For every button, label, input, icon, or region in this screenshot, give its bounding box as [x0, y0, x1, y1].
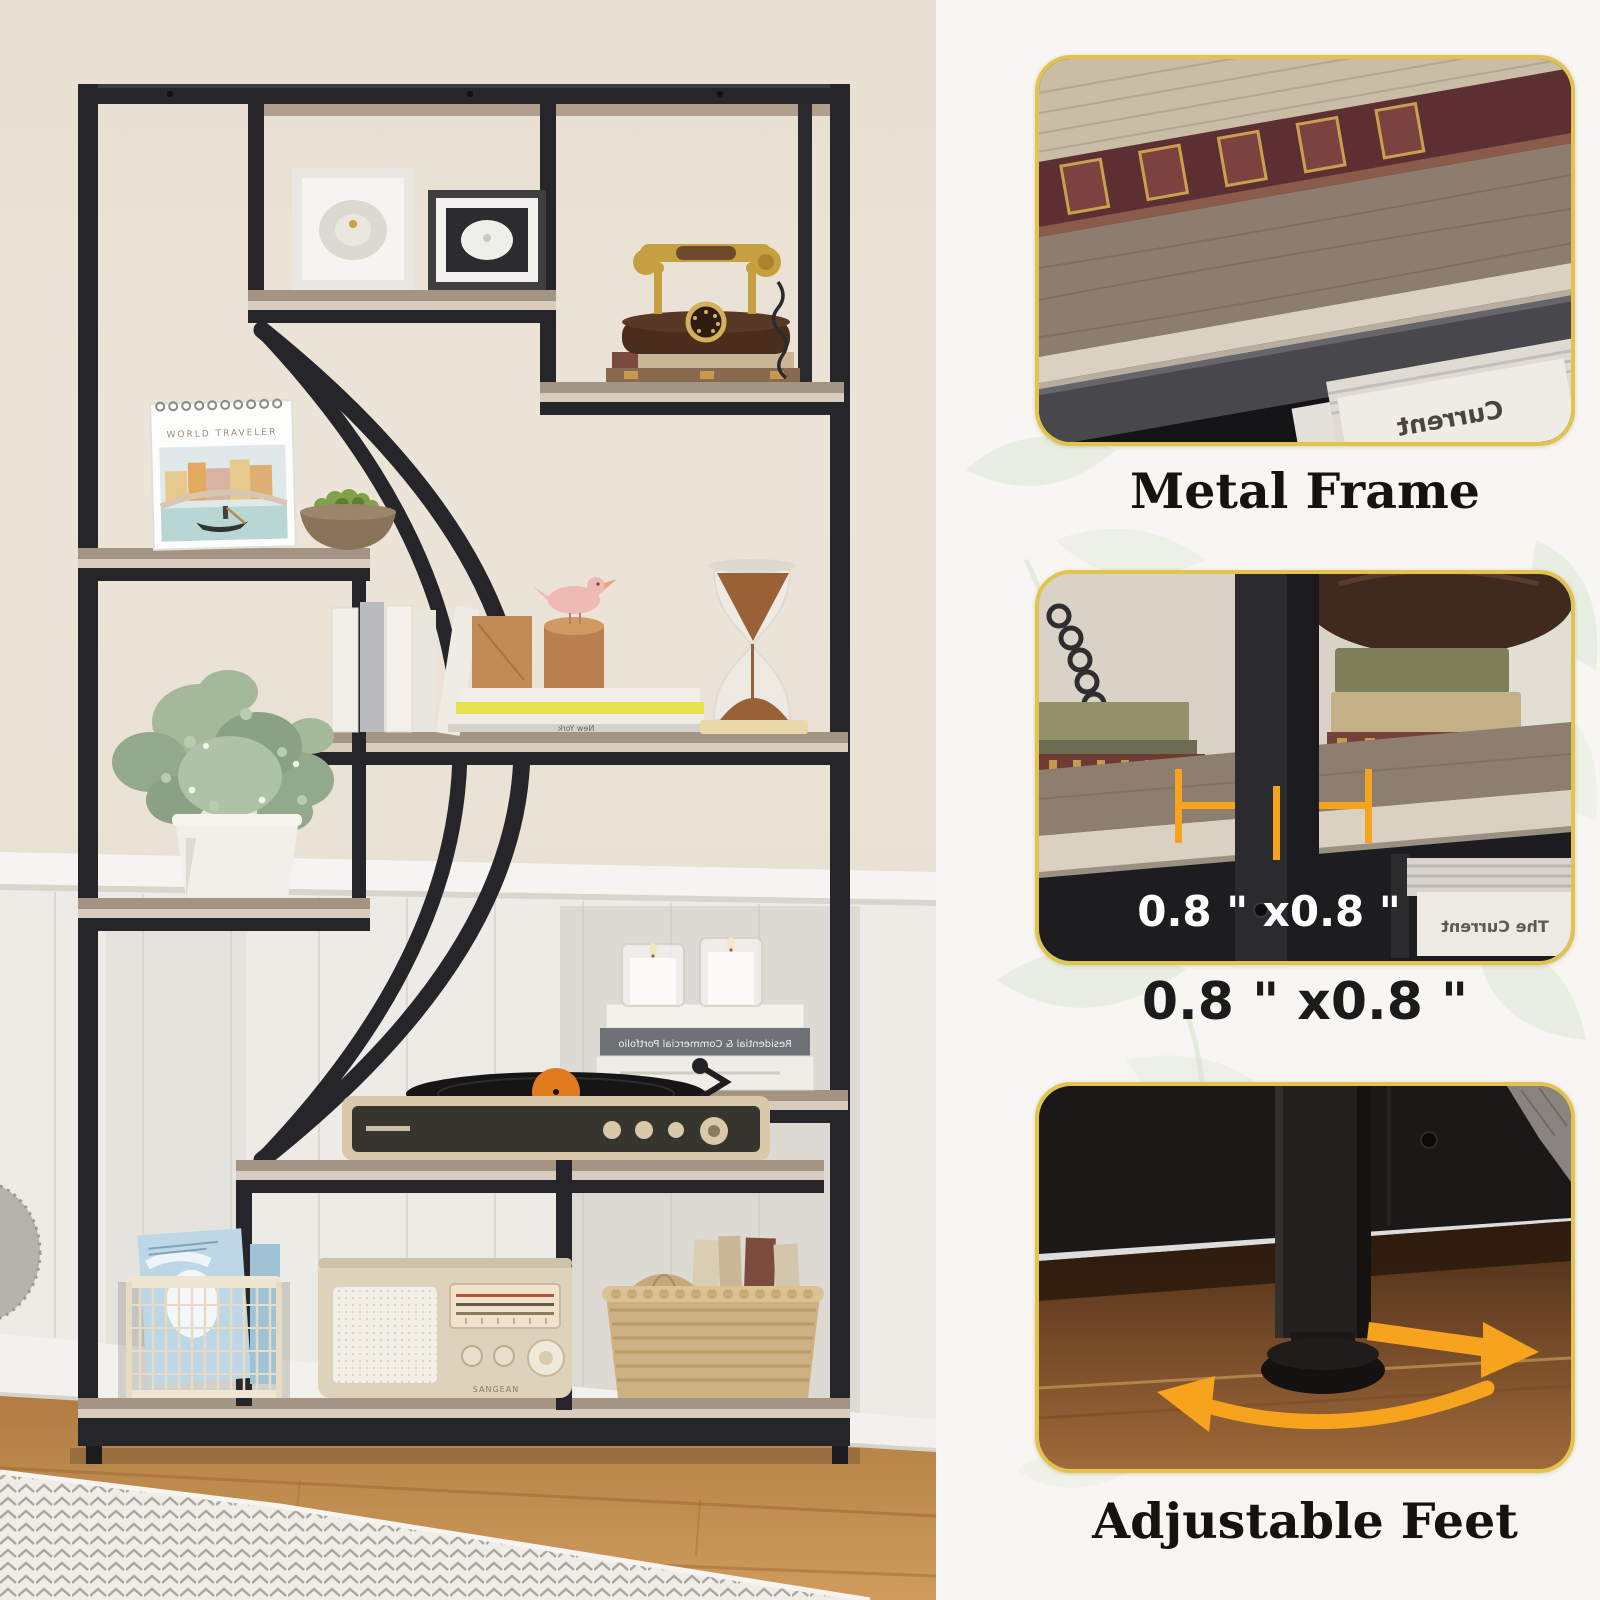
magazine-title-mirrored: The Current — [1441, 917, 1549, 936]
radio-brand: SANGEAN — [473, 1385, 519, 1394]
callout-label-tube-size: 0.8 " x0.8 " — [1035, 972, 1575, 1032]
shelf-middle-wide — [300, 732, 848, 765]
callout-card-adjustable-feet — [1035, 1082, 1575, 1473]
magazine-under-shelf: The Current — [1391, 854, 1571, 958]
callout-label-adjustable-feet: Adjustable Feet — [1035, 1492, 1575, 1550]
metal-leg — [1275, 1086, 1371, 1338]
shelf-top-left — [248, 290, 556, 323]
book-stack-title-mirrored: New York — [557, 724, 594, 733]
shelf-record-player — [236, 1160, 824, 1193]
book-spine-title-mirrored: Residential & Commercial Portfolio — [618, 1039, 791, 1050]
product-listing-image: WORLD TRAVELER New — [0, 0, 1600, 1600]
magazine-basket — [118, 1228, 290, 1398]
desk-calendar: WORLD TRAVELER — [150, 399, 296, 550]
feature-callout-panel: Current Metal Frame — [936, 0, 1600, 1600]
book-stack-middle: New York — [448, 688, 704, 733]
shelf-telephone — [540, 382, 844, 415]
shelf-calendar — [78, 548, 370, 581]
size-overlay-text: 0.8 " x0.8 " — [1137, 887, 1401, 936]
callout-label-metal-frame: Metal Frame — [1035, 462, 1575, 520]
shelf-plant — [78, 898, 370, 931]
candle-right — [700, 937, 762, 1006]
lifestyle-photo: WORLD TRAVELER New — [0, 0, 936, 1600]
callout-card-tube-size: The Current 0.8 " x0.8 " — [1035, 570, 1575, 965]
candle-left — [622, 943, 684, 1006]
vintage-radio: SANGEAN — [318, 1258, 572, 1398]
callout-card-metal-frame: Current — [1035, 55, 1575, 446]
